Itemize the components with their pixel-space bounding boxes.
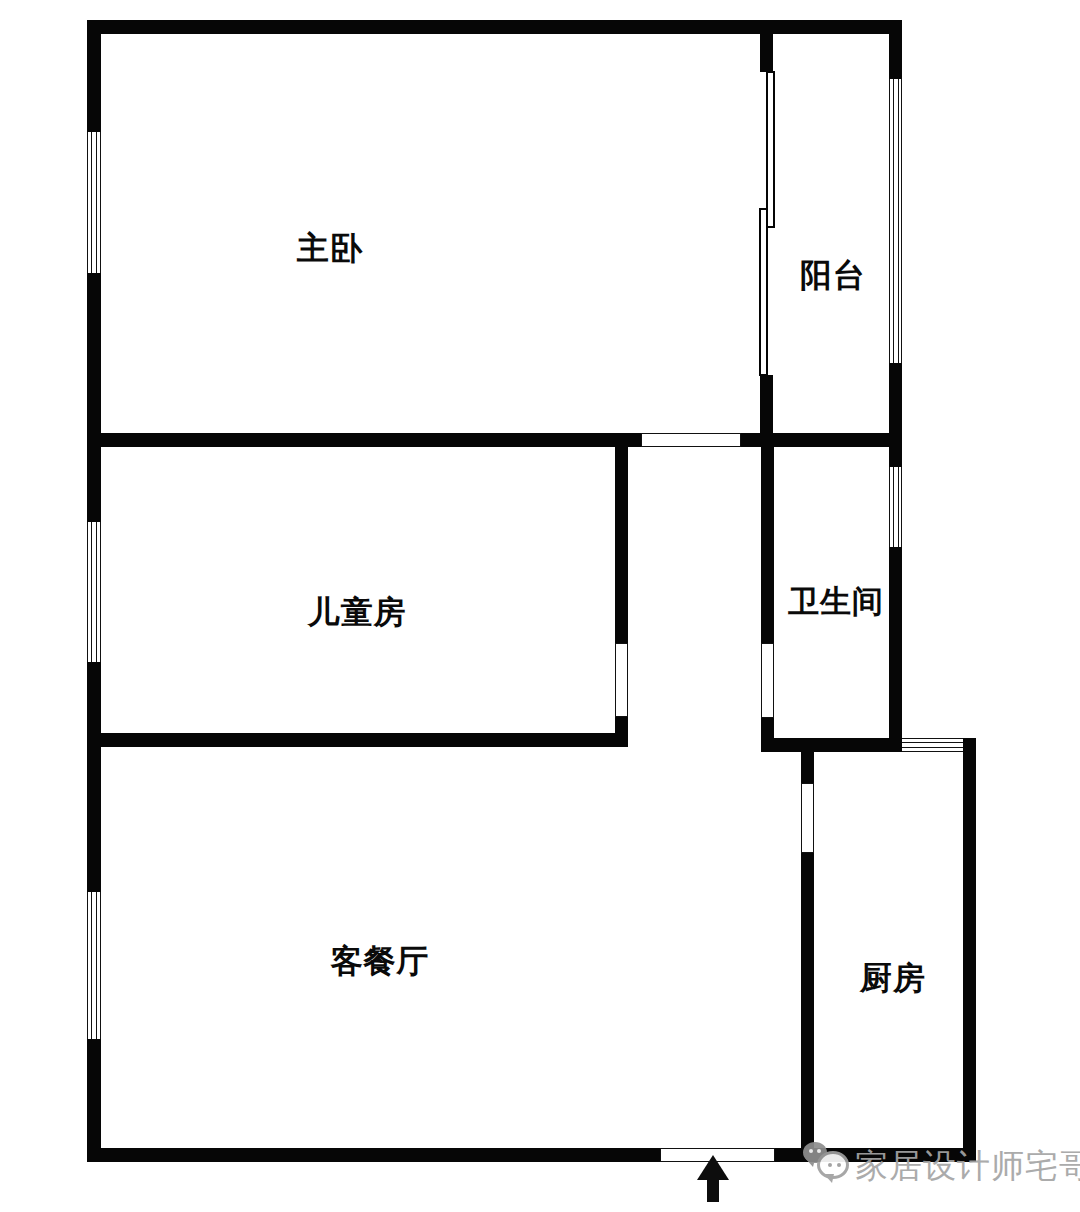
window-master-bedroom-left <box>87 132 101 273</box>
entrance-arrow-shaft <box>707 1178 719 1202</box>
watermark-text: 家居设计师宅哥 <box>855 1144 1080 1189</box>
wall-children-bottom <box>87 733 628 747</box>
door-children-room <box>615 643 628 717</box>
room-label-bathroom: 卫生间 <box>788 581 884 623</box>
entrance-arrow-head <box>697 1155 729 1180</box>
wall-balcony-divider-bottom <box>760 375 773 433</box>
wechat-bubble-big <box>817 1151 849 1179</box>
window-children-left <box>87 522 101 662</box>
wall-bathroom-bottom <box>761 738 903 752</box>
door-bathroom <box>761 643 774 718</box>
window-balcony-right <box>889 79 902 363</box>
room-label-balcony: 阳台 <box>800 254 866 298</box>
room-label-kitchen: 厨房 <box>860 957 926 1001</box>
window-bathroom-right <box>889 467 902 547</box>
wall-top <box>87 20 902 34</box>
balcony-sliding-panel-right <box>766 71 775 228</box>
room-label-master-bedroom: 主卧 <box>297 227 363 271</box>
door-kitchen <box>801 783 814 853</box>
room-label-children-room: 儿童房 <box>308 591 407 635</box>
window-living-left <box>87 892 101 1039</box>
watermark: 家居设计师宅哥 <box>803 1142 1063 1188</box>
floor-plan: 主卧 阳台 儿童房 卫生间 客餐厅 厨房 家居设计师宅哥 <box>0 0 1080 1212</box>
room-label-living-dining: 客餐厅 <box>331 940 430 984</box>
wall-kitchen-right <box>963 738 976 1162</box>
wall-balcony-divider-top <box>760 34 773 72</box>
balcony-sliding-panel-left <box>759 208 768 376</box>
window-kitchen-top <box>902 738 963 752</box>
door-master-bedroom <box>641 433 741 447</box>
wall-mid-horizontal <box>87 433 902 447</box>
